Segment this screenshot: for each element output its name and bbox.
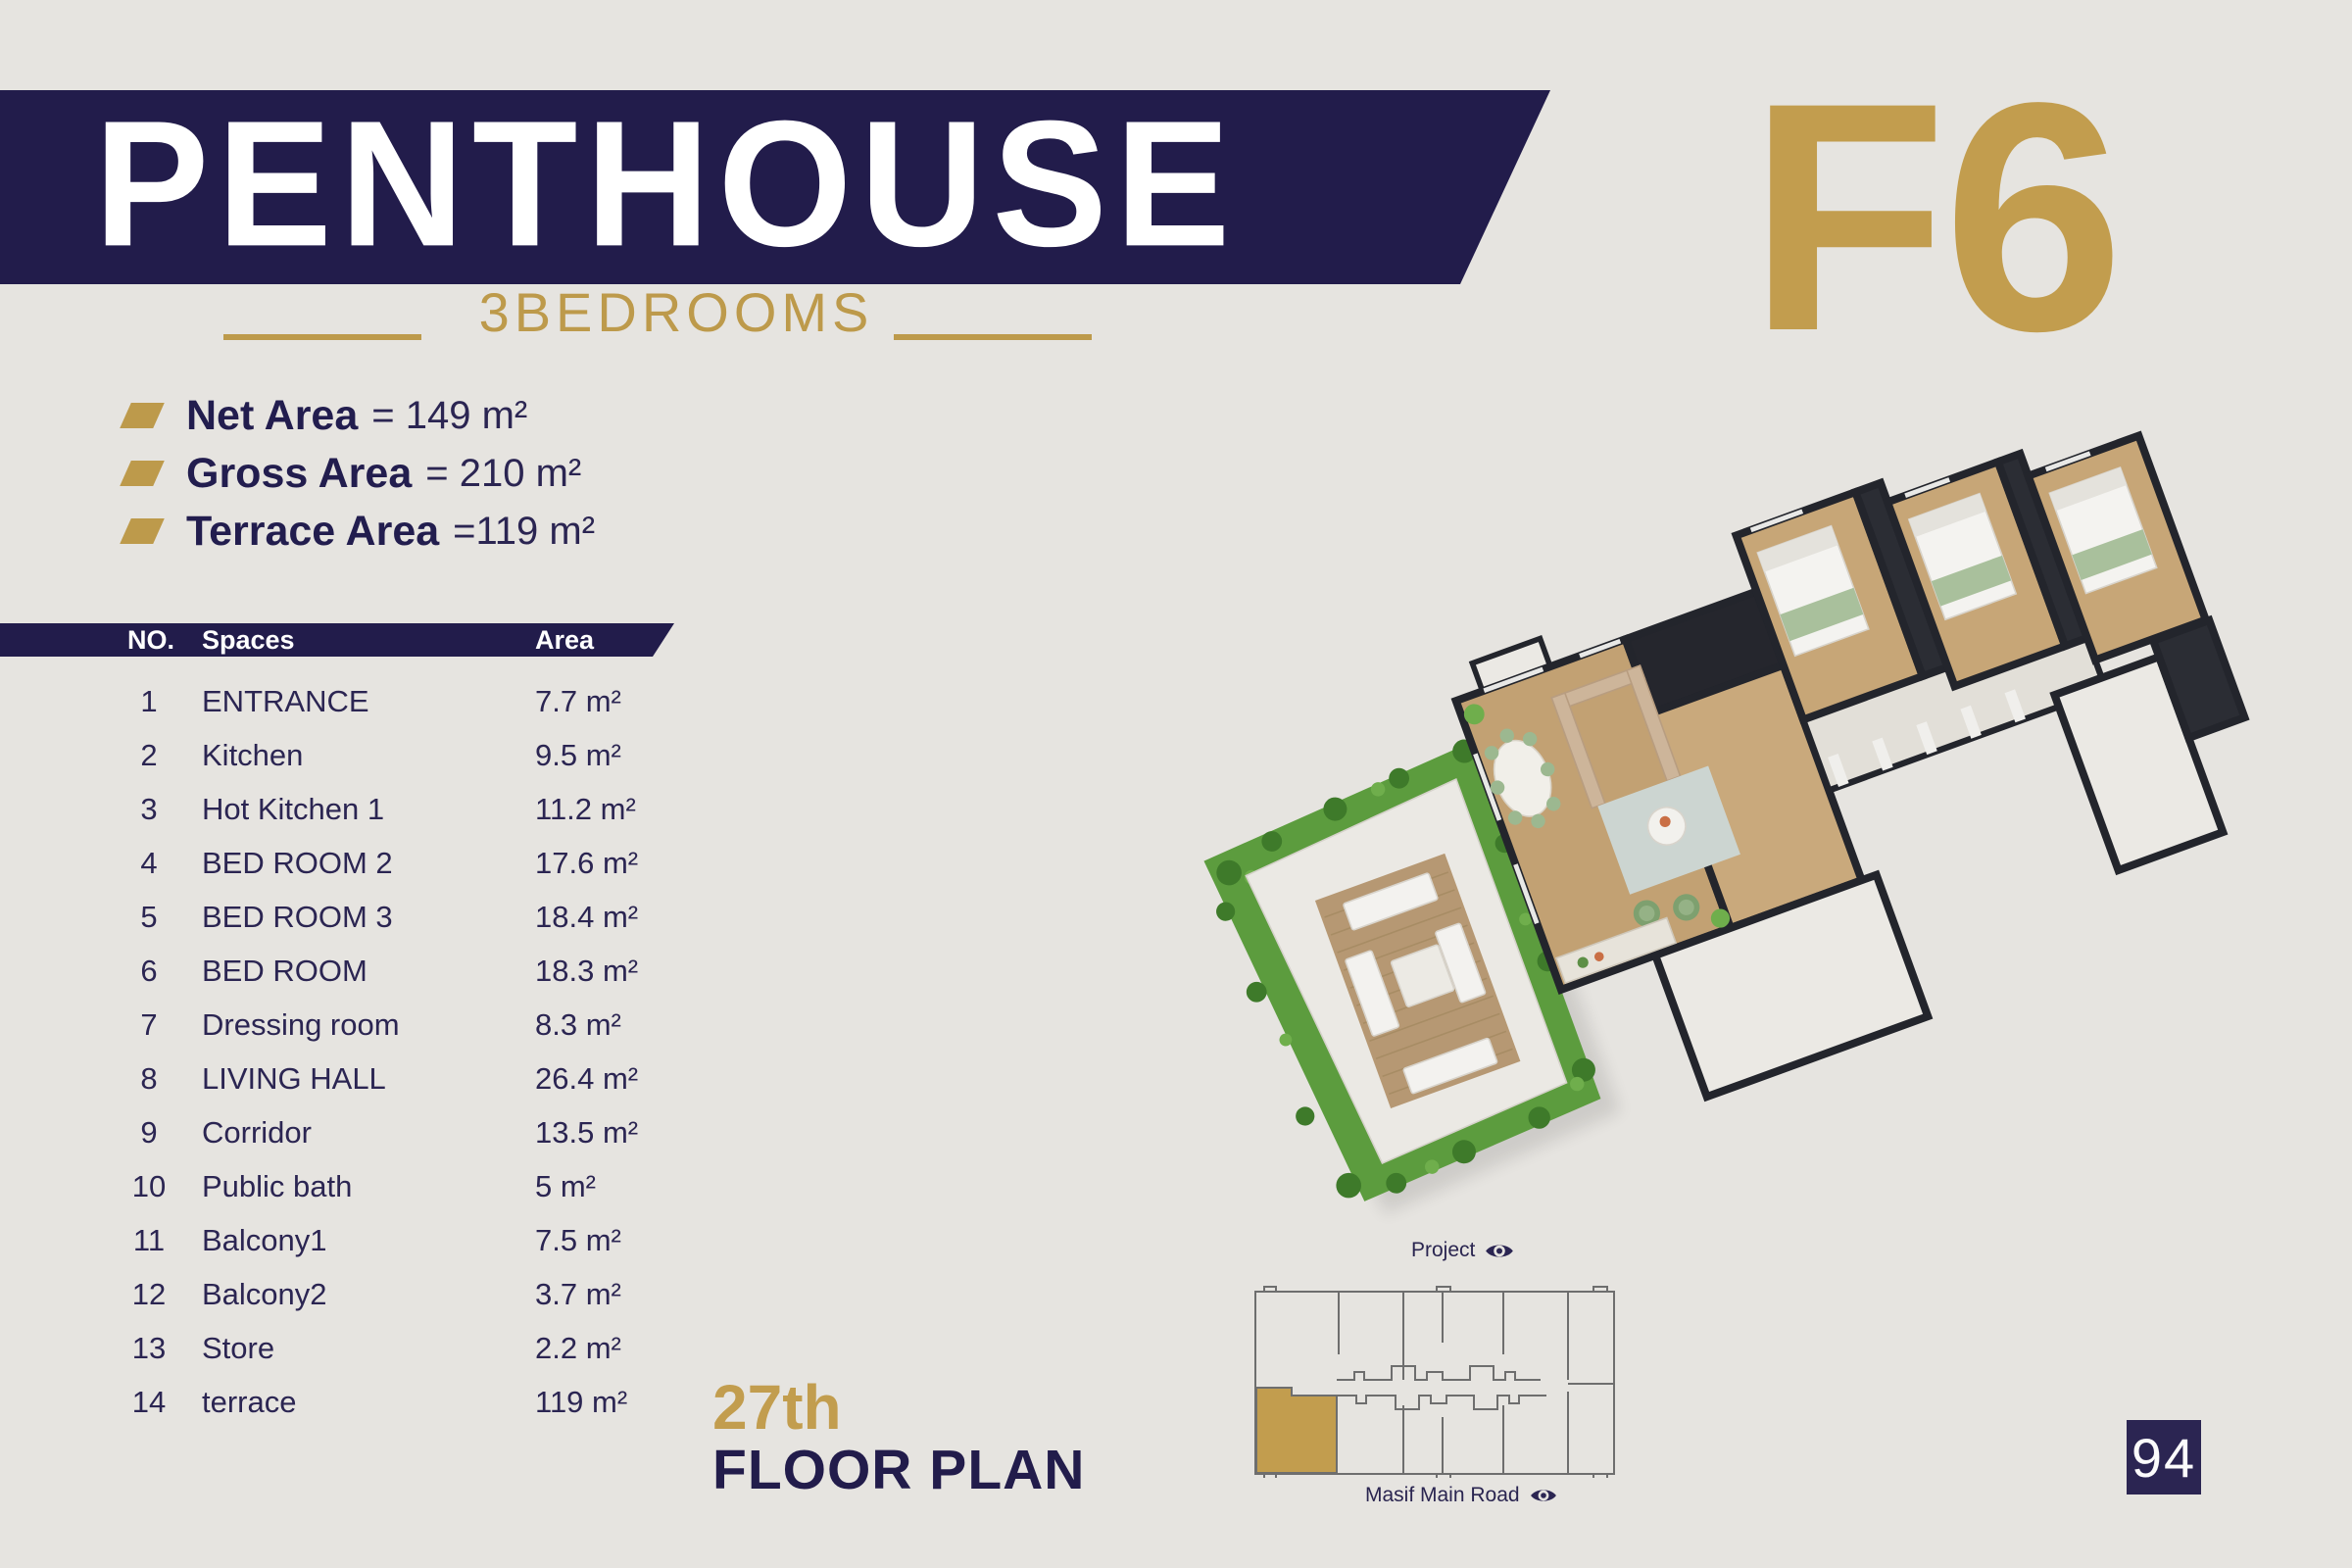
cell-area: 9.5 m² [535,738,621,773]
cell-area: 3.7 m² [535,1277,621,1312]
cell-space: BED ROOM [202,954,367,989]
cell-area: 18.3 m² [535,954,638,989]
table-row: 2Kitchen9.5 m² [0,728,706,782]
cell-no: 2 [125,738,172,773]
table-header: NO. Spaces Area [0,623,674,657]
cell-space: Store [202,1331,274,1366]
summary-row-terrace: Terrace Area =119 m² [125,508,595,555]
cell-no: 13 [125,1331,172,1366]
cell-space: ENTRANCE [202,684,369,719]
cell-space: terrace [202,1385,296,1420]
page-number-badge: 94 [2127,1420,2201,1494]
cell-no: 9 [125,1115,172,1151]
cell-area: 119 m² [535,1385,627,1420]
table-row: 13Store2.2 m² [0,1321,706,1375]
cell-no: 7 [125,1007,172,1043]
table-row: 10Public bath5 m² [0,1159,706,1213]
table-row: 14terrace119 m² [0,1375,706,1429]
cell-area: 7.5 m² [535,1223,621,1258]
cell-no: 8 [125,1061,172,1097]
cell-area: 5 m² [535,1169,596,1204]
table-row: 8LIVING HALL26.4 m² [0,1052,706,1105]
cell-space: Balcony1 [202,1223,327,1258]
page-number: 94 [2131,1426,2196,1490]
cell-area: 26.4 m² [535,1061,638,1097]
page-title: PENTHOUSE [0,86,1550,282]
cell-space: Public bath [202,1169,352,1204]
table-row: 9Corridor13.5 m² [0,1105,706,1159]
road-label: Masif Main Road [1365,1484,1520,1507]
cell-space: BED ROOM 2 [202,846,393,881]
floor-name: FLOOR PLAN [712,1443,1085,1498]
cell-no: 1 [125,684,172,719]
title-banner: PENTHOUSE [0,90,1550,284]
cell-space: Hot Kitchen 1 [202,792,384,827]
column-header-area: Area [535,623,594,657]
area-summary: Net Area = 149 m² Gross Area = 210 m² Te… [125,392,595,565]
cell-no: 6 [125,954,172,989]
cell-area: 7.7 m² [535,684,621,719]
eye-icon [1530,1487,1557,1504]
project-label: Project [1411,1239,1475,1262]
floor-ordinal: 27th [712,1376,1085,1439]
summary-value: =119 m² [453,510,595,554]
parallelogram-bullet-icon [120,461,165,486]
parallelogram-bullet-icon [120,518,165,544]
summary-row-net: Net Area = 149 m² [125,392,595,439]
cell-space: Dressing room [202,1007,400,1043]
unit-code: F6 [1748,55,2120,380]
table-row: 11Balcony17.5 m² [0,1213,706,1267]
summary-value: = 210 m² [425,452,581,496]
summary-row-gross: Gross Area = 210 m² [125,450,595,497]
cell-no: 4 [125,846,172,881]
floor-label: 27th FLOOR PLAN [712,1376,1085,1498]
subtitle-rule-right [894,334,1092,340]
table-row: 3Hot Kitchen 111.2 m² [0,782,706,836]
eye-icon [1485,1242,1514,1260]
column-header-spaces: Spaces [202,623,295,657]
cell-space: Kitchen [202,738,303,773]
table-row: 4BED ROOM 217.6 m² [0,836,706,890]
summary-label: Net Area [186,392,358,440]
cell-area: 13.5 m² [535,1115,638,1151]
subtitle: 3BEDROOMS [461,280,892,344]
table-row: 5BED ROOM 318.4 m² [0,890,706,944]
cell-space: Corridor [202,1115,312,1151]
site-map-road-label: Masif Main Road [1365,1484,1557,1507]
summary-value: = 149 m² [371,394,527,438]
cell-area: 2.2 m² [535,1331,621,1366]
parallelogram-bullet-icon [120,403,165,428]
cell-space: LIVING HALL [202,1061,386,1097]
cell-space: Balcony2 [202,1277,327,1312]
cell-no: 11 [125,1223,172,1258]
table-row: 7Dressing room8.3 m² [0,998,706,1052]
building-key-plan [1252,1286,1617,1478]
cell-space: BED ROOM 3 [202,900,393,935]
cell-area: 18.4 m² [535,900,638,935]
floor-plan-3d-render [1117,384,2293,1247]
cell-no: 3 [125,792,172,827]
table-row: 6BED ROOM18.3 m² [0,944,706,998]
cell-no: 12 [125,1277,172,1312]
summary-label: Terrace Area [186,508,439,556]
site-map-project-label: Project [1411,1239,1514,1262]
cell-area: 11.2 m² [535,792,636,827]
cell-no: 5 [125,900,172,935]
cell-area: 17.6 m² [535,846,638,881]
summary-label: Gross Area [186,450,412,498]
cell-no: 14 [125,1385,172,1420]
cell-no: 10 [125,1169,172,1204]
spaces-table: 1ENTRANCE7.7 m² 2Kitchen9.5 m² 3Hot Kitc… [0,674,706,1429]
brochure-page: PENTHOUSE F6 3BEDROOMS Net Area = 149 m²… [0,0,2352,1568]
subtitle-rule-left [223,334,421,340]
table-row: 12Balcony23.7 m² [0,1267,706,1321]
cell-area: 8.3 m² [535,1007,621,1043]
column-header-no: NO. [127,623,174,657]
table-row: 1ENTRANCE7.7 m² [0,674,706,728]
